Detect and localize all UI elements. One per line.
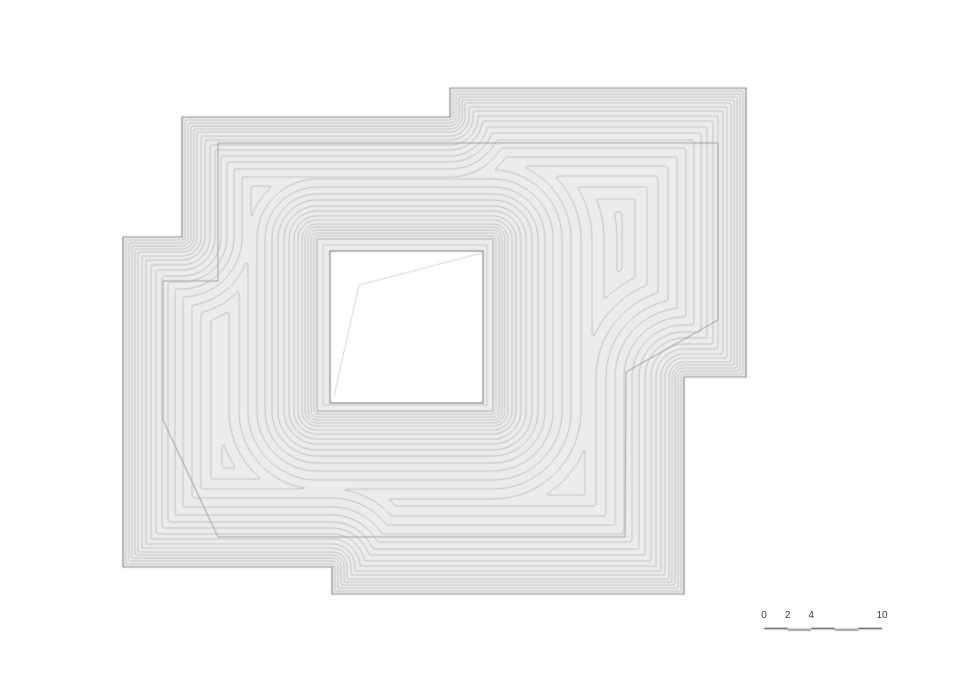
roof-plan-drawing	[0, 0, 960, 678]
roof-plan-page: 0 2 4 10	[0, 0, 960, 678]
